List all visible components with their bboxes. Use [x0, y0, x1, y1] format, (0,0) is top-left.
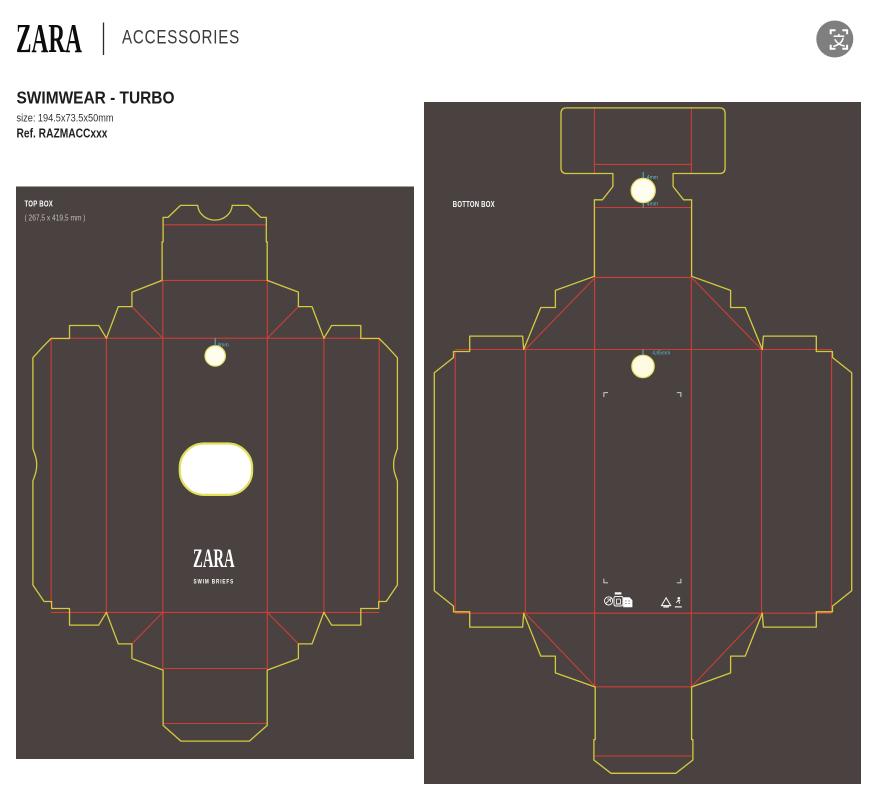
svg-text:4mm: 4mm [218, 342, 229, 348]
svg-text:ZARA: ZARA [16, 15, 82, 61]
svg-text:ACCESSORIES: ACCESSORIES [122, 28, 240, 49]
svg-text:BOTTON BOX: BOTTON BOX [453, 199, 495, 209]
svg-text:SWIMWEAR - TURBO: SWIMWEAR - TURBO [17, 88, 175, 108]
svg-text:size: 194.5x73.5x50mm: size: 194.5x73.5x50mm [17, 113, 114, 125]
svg-text:4,85mm: 4,85mm [652, 351, 670, 357]
svg-text:Ref. RAZMACCxxx: Ref. RAZMACCxxx [17, 127, 108, 141]
svg-text:4mm: 4mm [647, 175, 658, 181]
svg-text:4mm: 4mm [647, 202, 658, 208]
svg-text:ZARA: ZARA [193, 543, 235, 573]
svg-text:TOP BOX: TOP BOX [25, 199, 54, 209]
svg-text:( 267,5 x 419,5 mm ): ( 267,5 x 419,5 mm ) [25, 214, 86, 223]
svg-text:SWIM BRIEFS: SWIM BRIEFS [194, 579, 235, 585]
